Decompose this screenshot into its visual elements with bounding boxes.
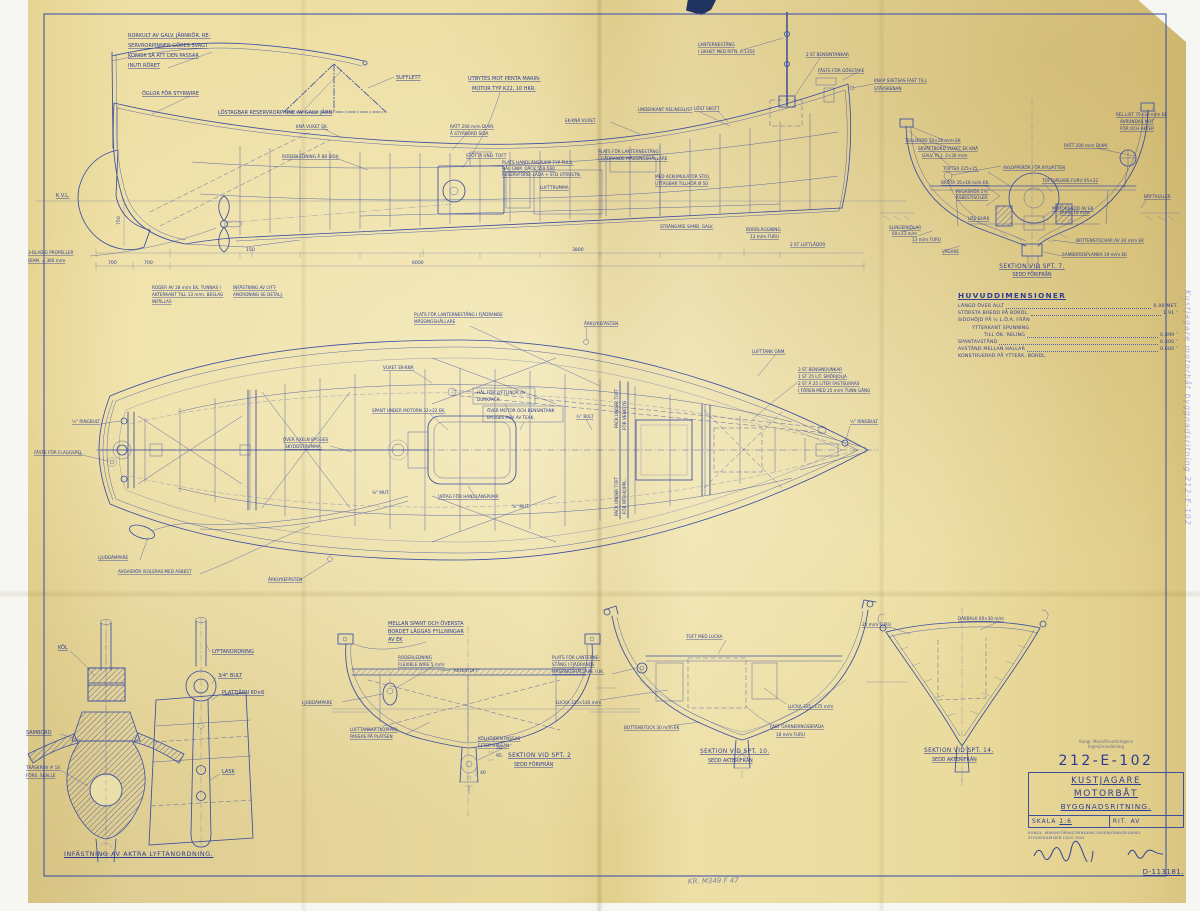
- label-sambord: SAMBORD: [26, 730, 52, 736]
- note-lyft-1: INFÄSTNING AV LYFT-: [233, 285, 277, 290]
- label-aktertoft: "AKTERTOFT": [452, 668, 480, 673]
- muffler: [128, 522, 156, 541]
- signature-right: [1128, 850, 1163, 858]
- scale-cell: SKALA 1:6: [1029, 816, 1110, 827]
- dimension-row: SIDOHÖJD PÅ ½ L.Ö.A. FRÅN: [958, 317, 1178, 324]
- stamp-line-2: Ingenjöravdelning: [1028, 744, 1184, 749]
- label-lanternstang-2: I LIKHET MED RITN. A-1354: [698, 49, 755, 54]
- folding-top: [284, 64, 386, 112]
- plan-view: PLATS FÖR LANTERNESTÅNG I FJÄDRANDE MÄSS…: [34, 312, 879, 582]
- dimension-row: SPANTAVSTÅND0.300 ″: [958, 339, 1178, 346]
- label-lanternstang-s10-1: PLATS FÖR LANTERNE-: [552, 655, 600, 660]
- note-dunkar-2: 1 ST 25 LIT. SMÖRJOLJA: [798, 374, 847, 379]
- label-lucka-left: LUCKA 325×140 m/m: [556, 700, 601, 705]
- blueprint-drawing: RORKULT AV GALV. JÄRNRÖR. RE- SERVRORPIN…: [0, 0, 1200, 911]
- label-sufflett: SUFFLETT: [396, 75, 421, 81]
- dimensions-title: HUVUDDIMENSIONER: [958, 291, 1178, 300]
- label-sambordsplanka: SAMBORDSPLANKA 19 m/m EK: [1062, 252, 1127, 257]
- label-ljuddampare-s2: LJUDDÄMPARE: [302, 700, 333, 705]
- dim-label: YTTERKANT SPUNNING: [972, 325, 1029, 332]
- label-bordlaggning-2: 13 m/m FURU: [750, 234, 779, 239]
- label-axeln-2: SKYDDSTRUMMA.: [285, 444, 322, 449]
- label-tullbord: TULLBORD 50×16 m/m EK: [904, 138, 961, 143]
- title-box: KUSTJAGARE MOTORBÅT BYGGNADSRITNING.: [1028, 772, 1184, 816]
- label-bordlaggning-1: BORDLÄGGNING: [746, 227, 781, 232]
- rudder: [78, 150, 150, 250]
- rit-av-cell: RIT. AV: [1110, 816, 1183, 827]
- dim-label: SPANTAVSTÅND: [958, 339, 997, 346]
- label-gosstake: FÄSTE FÖR GÖSSTAKE: [818, 68, 865, 73]
- caption-spt2: SEKTION VID SPT. 2: [508, 753, 571, 759]
- drawing-number: 212-E-102: [1028, 753, 1184, 769]
- section-spt2: MELLAN SPANT OCH ÖVERSTA BORDET LÄGGAS F…: [302, 620, 640, 816]
- label-kol: KÖL: [58, 644, 68, 651]
- dimension-row: YTTERKANT SPUNNING: [958, 325, 1178, 332]
- label-lucka-right: LUCKA 325×175 m/m: [788, 704, 833, 709]
- label-oglor: ÖGLOR FÖR STYRWIRE: [142, 90, 199, 97]
- label-toftvagare: TOFTVÄGARE FURU 95×22: [1041, 178, 1098, 183]
- caption-spt14: SEKTION VID SPT. 14.: [924, 748, 994, 754]
- note-hal-1: HÅL FÖR LYFTLINOR AV: [477, 390, 526, 395]
- main-dimensions-block: HUVUDDIMENSIONER LÄNGD ÖVER ALLT6.00 MET…: [958, 291, 1178, 361]
- label-plattjarn: PLATTJÄRN 60×6: [222, 689, 264, 696]
- label-axeln-1: ÖVER AXELN BYGGES: [283, 437, 328, 442]
- note-penta-2: MOTOR TYP K22, 10 HKR.: [472, 86, 536, 92]
- caption-spt14-sub: SEDD AKTERIFRÅN: [932, 756, 977, 763]
- label-strangare: STRÄNGARE SAMB. GALV.: [660, 224, 713, 229]
- label-plats-lantern-1: PLATS FÖR LANTERNESTÅNG: [598, 149, 659, 154]
- label-ackumulator-1: MED ACKUMULATOR STOL: [655, 174, 710, 179]
- label-pack-4: FÖR MTR-KOPPL.: [622, 479, 627, 514]
- label-stotta: STÖTTA UND. TOFT: [466, 153, 507, 158]
- dim-150: 150: [246, 247, 255, 253]
- label-lanternstang-1: LANTERNESTÅNG: [698, 42, 735, 47]
- label-ackumulator-2: UTTAGBAR TILLHÖR Ø 50: [655, 181, 708, 186]
- caption-spt7-sub: SEDD FÖRIFRÅN: [1012, 271, 1052, 278]
- label-garnering-1: FAST GARNERINGSBRÄDA: [770, 724, 824, 729]
- note-huv-2: BYGGES HUV AV TEAK.: [487, 415, 535, 420]
- label-los-durk: LÖS DURK: [968, 216, 990, 221]
- label-kolhojd-1: KÖLHÖJDEN PASSAS: [478, 736, 521, 741]
- label-brota: BRÖTA 35×16 m/m EK.: [941, 180, 990, 185]
- label-bensintankar: 2 ST BENSINTANKAR: [806, 52, 849, 57]
- label-tofter: TOFTER 225×25.: [942, 166, 979, 171]
- label-slingerkol-1: SLINGERKÖLAR: [889, 225, 921, 230]
- label-kvl: K.V.L.: [56, 193, 70, 199]
- label-skvattbord: SKVÄTTBORD VUXET EK KNÄ: [918, 146, 978, 151]
- label-kolhojd-2: EFTER HYLSAN: [478, 743, 509, 748]
- dimension-row: LÄNGD ÖVER ALLT6.00 MET.: [958, 303, 1178, 310]
- label-roderledning-s2-1: RODERLEDNING: [398, 655, 432, 660]
- note-rorkult-3: KONISK SÅ ATT DEN PASSAR: [128, 52, 199, 59]
- margin-handwritten-note: Kustjagare motorbåt byggnadsritning 212-…: [1183, 290, 1192, 526]
- dimension-row: STÖRSTA BREDD PÅ BORDL.1.91 ″: [958, 310, 1178, 317]
- caption-spt10: SEKTION VID SPT. 10.: [700, 749, 770, 755]
- label-mut-a: ⅝" MUT.: [372, 490, 389, 495]
- title-block: Kungl. Marinförvaltningens Ingenjöravdel…: [1028, 739, 1184, 876]
- dim-40: 40: [480, 770, 486, 776]
- section-spt14: 20 m/m FURU DÄKBALK 60×30 m/m SEKTION VI…: [862, 608, 1048, 786]
- label-bult: 3/4" BULT: [218, 673, 243, 679]
- label-underkant-relingslist: UNDERKANT RELINGSLIST: [638, 107, 693, 112]
- note-huv-1: ÖVER MOTOR OCH BENSINTANK: [487, 408, 555, 413]
- title-line-2: MOTORBÅT: [1033, 789, 1179, 799]
- dim-6000: 6000: [412, 260, 424, 266]
- label-lanternstang-s10-2: STÅNG I FJÄDRANDE: [552, 662, 595, 667]
- label-plats-lantern-plan-1: PLATS FÖR LANTERNESTÅNG I FJÄDRANDE: [414, 312, 503, 317]
- dimension-row: AVSTÅND MELLAN HALLAR0.600 ″: [958, 346, 1178, 353]
- signatures: [1028, 840, 1182, 862]
- label-ratt-s7: RATT 200 m/m DIAM.: [1064, 143, 1108, 148]
- signature-left: [1034, 841, 1093, 862]
- dim-3800: 3800: [572, 247, 584, 253]
- label-durk: DURK 18 m/m: [1060, 210, 1090, 215]
- label-toft-med-lucka: TOFT MED LUCKA: [685, 634, 723, 639]
- note-dunkar-3: 2 ST Å 25 LITER FASTSURRAS: [798, 381, 860, 386]
- label-lufttrumma: LUFTTRUMMA: [540, 185, 569, 190]
- label-propeller-2: DIAM. = 360 m/m: [28, 258, 65, 263]
- dim-label: KONSTRUERAD PÅ YTTERK. BORDL.: [958, 353, 1047, 360]
- file-number: D-113181.: [1028, 868, 1184, 876]
- label-pack-3: PACK UNDER TOFT: [614, 476, 619, 516]
- section-spt10: TOFT MED LUCKA PLATS FÖR LANTERNE- STÅNG…: [552, 600, 908, 778]
- archive-pencil-note: KR. M349 F 47: [688, 876, 739, 885]
- label-dackbalk: DÄKBALK 60×30 m/m: [958, 616, 1004, 621]
- note-rorkult-1: RORKULT AV GALV. JÄRNRÖR. RE-: [128, 32, 211, 39]
- label-avloppsror: AVLOPPSRÖR FÖR KYLVATTEN: [1003, 165, 1065, 170]
- detail-caption: INFÄSTNING AV AKTRA LYFTANORDNING.: [64, 850, 213, 858]
- dim-value: 1.91 ″: [1163, 310, 1178, 317]
- label-slingerkol-2: 60×23 m/m: [892, 231, 917, 236]
- label-knap-1: KNAP SVETSAS FAST TILL: [874, 78, 927, 83]
- label-ratt-2: Å STYRBORD SIDA: [450, 131, 488, 136]
- label-knap-2: STÄVSKENAN: [874, 86, 902, 91]
- label-avgasror-1: AVGASRÖR 1¼": [956, 189, 989, 194]
- label-lufttank: LUFTTANK GNM.: [752, 349, 786, 354]
- note-rorkult-2: SERVRORPINNEN GÖRES SVAGT: [128, 42, 209, 49]
- label-avgasror-plan: AVGASRÖR ISOLERAS MED ASBEST: [118, 569, 192, 574]
- dim-95: 95.: [496, 753, 503, 759]
- dim-label: STÖRSTA BREDD PÅ BORDL.: [958, 310, 1029, 317]
- label-roderledning: RODERLEDNING Å BB SIDA: [282, 154, 339, 159]
- scale-value: 1:6: [1059, 818, 1072, 825]
- label-traskruv-2: FÖRS. SKALLE: [26, 773, 56, 778]
- label-bult-34: ¾" BULT: [576, 414, 594, 419]
- label-pack-1: PACK UNDER TOFT: [614, 388, 619, 428]
- scale-label: SKALA: [1032, 818, 1056, 825]
- note-fyllningar-1: MELLAN SPANT OCH ÖVERSTA: [388, 620, 464, 627]
- label-plats-lantern-plan-2: MÄSSINGSHÅLLARE: [414, 319, 456, 324]
- dim-50: 50.: [496, 745, 503, 751]
- label-13mm-furu: 13 m/m FURU: [912, 237, 941, 242]
- label-pack-2: FÖR VERKTYG: [622, 401, 627, 430]
- label-lanternstang-s10-3: MÄSSINGSHÅLLARE I UK.: [552, 669, 604, 674]
- label-spant-motor: SPANT UNDER MOTORN 32×22 EK.: [372, 408, 445, 413]
- keel-lifting-detail: KÖL SAMBORD TRÄSKRUV # 14 FÖRS. SKALLE L…: [25, 618, 264, 863]
- label-lask: LASK: [222, 769, 235, 775]
- label-lufttankar-2: PASSAS PÅ PLATSEN: [350, 734, 393, 739]
- note-hal-2: DURKPACK.: [477, 397, 501, 402]
- label-urtag-pump: URTAG FÖR HANDLÄNSPUMP.: [438, 494, 499, 499]
- label-vuxet-ekkna: VUXET EK-KNÄ: [383, 365, 414, 370]
- label-kna-vuxet: KNÄ VUXET EK.: [296, 124, 328, 129]
- dim-label: SIDOHÖJD PÅ ½ L.Ö.A. FRÅN: [958, 317, 1030, 324]
- label-brytvuller: BRYTVULLER: [1144, 194, 1171, 199]
- label-flaggspel: FÄSTE FÖR FLAGGSPEL: [34, 450, 83, 455]
- dimension-row: KONSTRUERAD PÅ YTTERK. BORDL.: [958, 353, 1178, 360]
- caption-spt2-sub: SEDD FÖRIFRÅN: [514, 761, 554, 768]
- label-lost-skott: LÖST SKOTT: [694, 106, 720, 111]
- dim-label: AVSTÅND MELLAN HALLAR: [958, 346, 1025, 353]
- note-penta-1: UTBYTES MOT PENTA MARIN-: [468, 76, 541, 82]
- note-roder-1: RODER AV 28 m/m EK, TUNNAS I: [152, 285, 221, 290]
- profile-view: RORKULT AV GALV. JÄRNRÖR. RE- SERVRORPIN…: [28, 12, 927, 304]
- note-pump-1: PLATS HANDLÄNSPUMP TYP PULS.: [502, 160, 573, 165]
- caption-spt10-sub: SEDD AKTERIFRÅN: [708, 757, 753, 764]
- dim-750: 750: [116, 216, 122, 225]
- label-galv-plattjarn: GALV. PL.J. 3×30 m/m: [922, 153, 967, 158]
- dim-700-a: 700: [108, 260, 117, 266]
- note-rorkult-4: INUTI RÖRET: [128, 62, 161, 69]
- dim-value: 0.600 ″: [1160, 346, 1178, 353]
- label-bottenstock: BOTTENSTOCK 30 m/m EK: [624, 725, 680, 730]
- label-plats-lantern-2: I FJÄDRANDE MÄSSINGSHÅLLARE: [598, 156, 668, 161]
- note-roder-3: INFÄLLAS: [152, 299, 172, 304]
- label-luftlador: 2 ST LUFTLÅDOR: [790, 242, 825, 247]
- dimension-row: TILL ÖK. RELING0.899 ″: [958, 332, 1178, 339]
- title-line-3: BYGGNADSRITNING.: [1033, 802, 1179, 811]
- note-fyllningar-2: BORDET LÄGGAS FYLLNINGAR: [388, 628, 464, 635]
- engine: [438, 166, 504, 214]
- label-reservrorpinne: LÖSTAGBAR RESERVRORPINNE AV GALV. JÄRN: [218, 109, 333, 116]
- scale-row: SKALA 1:6 RIT. AV: [1028, 816, 1184, 828]
- caption-spt7: SEKTION VID SPT. 7.: [999, 264, 1065, 270]
- title-line-1: KUSTJAGARE: [1033, 776, 1179, 786]
- label-ringbult-left: ½" RINGBULT: [72, 419, 101, 424]
- label-ljuddampare-plan: LJUDDÄMPARE: [98, 555, 129, 560]
- label-vagare: VÄGARE: [942, 249, 959, 254]
- dim-label: TILL ÖK. RELING: [984, 332, 1025, 339]
- dim-value: 0.899 ″: [1160, 332, 1178, 339]
- label-ratt-1: RATT 200 m/m DIAM.: [450, 124, 494, 129]
- label-roderledning-s2-2: FLEXIBLE WIRE 5 m/m: [398, 662, 445, 667]
- dim-label: LÄNGD ÖVER ALLT: [958, 303, 1004, 310]
- label-arklyke-bottom: ÅRKLYKEFÄSTEN: [268, 577, 302, 582]
- office-stamp: Kungl. Marinförvaltningens Ingenjöravdel…: [1028, 739, 1184, 749]
- label-rellist-1: REL.LIST 70×30 m/m EK: [1116, 112, 1167, 117]
- dim-700-b: 700: [144, 260, 153, 266]
- note-dunkar-4: I FÖREN MED 25 m/m TUNN GÅNG: [798, 388, 870, 393]
- label-rellist-3: FÖR OCH AKTER: [1120, 126, 1154, 131]
- label-20mm-furu: 20 m/m FURU: [862, 622, 891, 627]
- label-avgasror-2: ASBESTISOLER.: [956, 195, 989, 200]
- note-fyllningar-3: AV EK: [388, 637, 403, 643]
- label-arklyke-top: ÅRKLYKEFÄSTEN: [584, 321, 618, 326]
- dim-value: 0.300 ″: [1160, 339, 1178, 346]
- scanned-blueprint-page: RORKULT AV GALV. JÄRNRÖR. RE- SERVRORPIN…: [0, 0, 1200, 911]
- label-lufttankar-1: LUFTTANKAR (KOPPAR): [350, 727, 398, 732]
- note-roder-2: AKTERKANT TILL 13 m/m. BESLAG: [152, 292, 223, 297]
- label-rellist-2: AVRUNDAS MOT: [1120, 119, 1154, 124]
- label-garnering-2: 18 m/m FURU: [776, 732, 805, 737]
- note-lyft-2: ANORDNING SE DETALJ.: [233, 292, 283, 297]
- note-pump-2: HÅL GNM. DÄCK 550-560: [502, 166, 555, 171]
- label-propeller-1: 3-BLADIG PROPELLER: [28, 250, 73, 255]
- dim-value: 6.00 MET.: [1153, 303, 1178, 310]
- note-pump-3: RESERVFÖRB. LÅDA + STD UTRUSTN.: [502, 172, 581, 177]
- section-spt7: TULLBORD 50×16 m/m EK SKVÄTTBORD VUXET E…: [880, 98, 1180, 278]
- label-bottenstockar: BOTTENSTOCKAR AV 30 m/m EK: [1076, 238, 1144, 243]
- label-traskruv-1: TRÄSKRUV # 14: [25, 765, 60, 770]
- label-ringbult-right: ½" RINGBULT: [850, 419, 879, 424]
- label-lyftanordning: LYFTANORDNING: [212, 649, 254, 655]
- label-mut-b: ⅝" MUT.: [512, 504, 529, 509]
- note-dunkar-1: 3 ST BENSINDUNKAR: [798, 367, 842, 372]
- label-ekkna: EK-KNÄ VUXET: [565, 118, 596, 123]
